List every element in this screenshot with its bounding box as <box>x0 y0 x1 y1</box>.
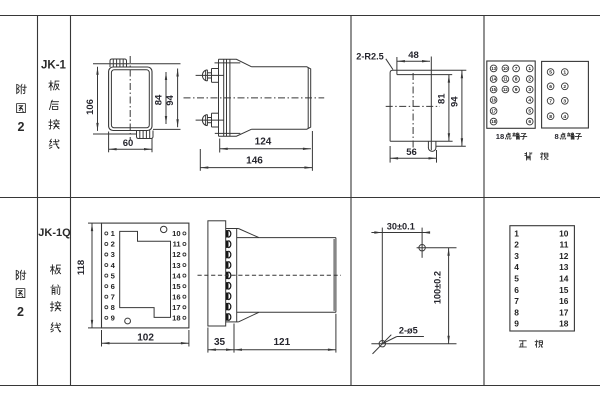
svg-text:9: 9 <box>111 314 115 323</box>
svg-text:11: 11 <box>503 77 508 82</box>
svg-text:15: 15 <box>559 285 569 295</box>
svg-text:16: 16 <box>559 296 569 306</box>
svg-text:100±0.2: 100±0.2 <box>433 271 443 304</box>
svg-text:6: 6 <box>549 84 552 90</box>
svg-text:16: 16 <box>491 98 496 103</box>
svg-text:3: 3 <box>563 98 566 104</box>
svg-text:17: 17 <box>172 303 180 312</box>
svg-text:16: 16 <box>172 292 180 301</box>
svg-text:10: 10 <box>559 228 569 238</box>
svg-text:146: 146 <box>246 155 263 166</box>
svg-text:7: 7 <box>515 66 518 72</box>
svg-text:48: 48 <box>408 50 419 61</box>
svg-text:15: 15 <box>491 87 496 92</box>
svg-text:8: 8 <box>554 132 558 141</box>
svg-text:3: 3 <box>528 87 531 93</box>
svg-text:6: 6 <box>514 285 519 295</box>
svg-text:3: 3 <box>514 251 519 261</box>
svg-text:1: 1 <box>563 70 566 76</box>
svg-text:94: 94 <box>165 95 176 106</box>
svg-text:14: 14 <box>172 271 181 280</box>
svg-text:8: 8 <box>549 114 552 120</box>
svg-text:121: 121 <box>273 337 290 348</box>
svg-text:60: 60 <box>123 138 134 149</box>
svg-text:8: 8 <box>111 303 115 312</box>
svg-text:106: 106 <box>85 99 96 115</box>
svg-text:13: 13 <box>559 262 569 272</box>
svg-text:12: 12 <box>172 250 180 259</box>
svg-text:9: 9 <box>515 87 518 93</box>
svg-text:17: 17 <box>559 307 569 317</box>
svg-text:14: 14 <box>559 274 569 284</box>
svg-text:JK-1Q: JK-1Q <box>38 227 71 239</box>
svg-text:84: 84 <box>153 94 164 105</box>
svg-text:12: 12 <box>559 251 569 261</box>
svg-text:17: 17 <box>491 109 496 114</box>
svg-text:18: 18 <box>172 314 180 323</box>
svg-text:12: 12 <box>503 87 508 92</box>
svg-text:10: 10 <box>503 66 508 71</box>
svg-text:9: 9 <box>514 319 519 329</box>
svg-text:2: 2 <box>111 240 115 249</box>
svg-text:2: 2 <box>528 77 531 83</box>
svg-text:81: 81 <box>437 93 448 104</box>
svg-text:14: 14 <box>491 77 496 82</box>
svg-text:5: 5 <box>549 70 552 76</box>
svg-text:102: 102 <box>137 333 154 344</box>
svg-text:18: 18 <box>496 132 504 141</box>
svg-text:118: 118 <box>76 260 87 275</box>
svg-text:4: 4 <box>514 262 519 272</box>
svg-text:5: 5 <box>514 274 519 284</box>
svg-text:30±0.1: 30±0.1 <box>387 221 415 231</box>
svg-text:7: 7 <box>111 292 115 301</box>
svg-text:8: 8 <box>515 77 518 83</box>
svg-text:35: 35 <box>214 337 226 348</box>
svg-text:2: 2 <box>17 305 24 319</box>
svg-text:3: 3 <box>111 250 115 259</box>
svg-text:5: 5 <box>528 109 531 115</box>
svg-text:13: 13 <box>172 261 180 270</box>
svg-text:11: 11 <box>173 240 182 249</box>
svg-text:94: 94 <box>450 96 461 107</box>
svg-text:2-R2.5: 2-R2.5 <box>356 52 384 62</box>
svg-text:2: 2 <box>563 84 566 90</box>
svg-text:6: 6 <box>528 119 531 125</box>
svg-text:10: 10 <box>172 229 180 238</box>
svg-text:7: 7 <box>549 98 552 104</box>
svg-text:2: 2 <box>18 120 25 134</box>
svg-text:15: 15 <box>172 282 181 291</box>
svg-text:2: 2 <box>514 240 519 250</box>
svg-text:4: 4 <box>528 98 531 104</box>
svg-text:11: 11 <box>560 240 569 250</box>
svg-text:7: 7 <box>514 296 519 306</box>
svg-text:13: 13 <box>491 66 496 71</box>
svg-text:2-ø5: 2-ø5 <box>399 325 418 335</box>
svg-text:56: 56 <box>406 147 417 158</box>
svg-text:124: 124 <box>255 137 272 148</box>
svg-text:JK-1: JK-1 <box>41 60 67 72</box>
svg-text:18: 18 <box>559 319 569 329</box>
svg-text:8: 8 <box>514 307 519 317</box>
svg-text:1: 1 <box>528 66 531 72</box>
svg-text:4: 4 <box>563 114 566 120</box>
svg-text:6: 6 <box>111 282 115 291</box>
svg-text:1: 1 <box>514 228 519 238</box>
svg-text:18: 18 <box>491 119 496 124</box>
